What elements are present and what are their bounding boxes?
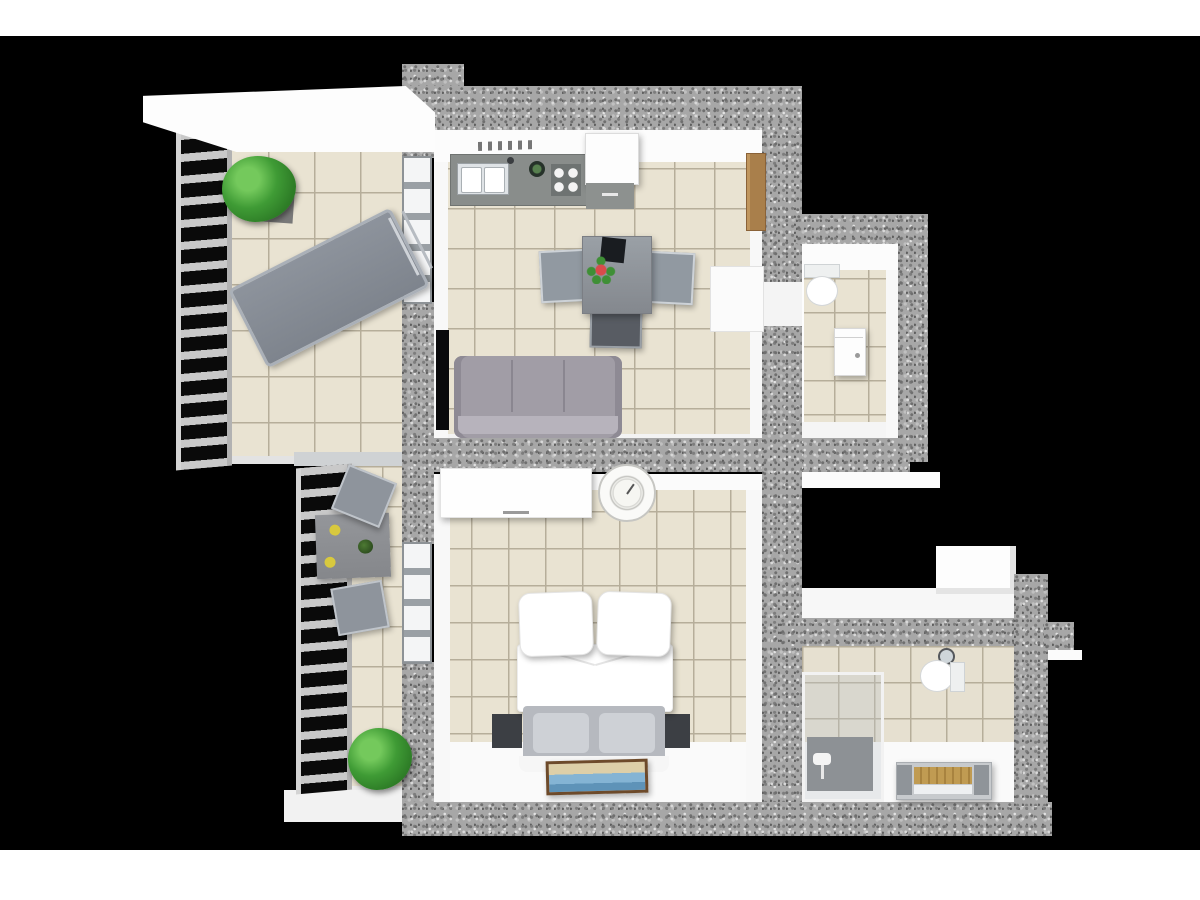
sink-basin — [484, 167, 505, 193]
double-bed — [517, 588, 671, 770]
flower-centerpiece — [586, 256, 616, 284]
bathtub-end — [897, 765, 912, 795]
wc-vanity-cabinet — [834, 328, 866, 376]
open-wooden-door — [746, 153, 766, 231]
letterbox-top — [0, 0, 1200, 36]
wall-clock — [598, 464, 656, 522]
bathtub-rim — [914, 785, 972, 794]
tv — [436, 330, 449, 430]
picture-frame — [546, 759, 649, 796]
wall-jog-sliver — [1048, 650, 1082, 660]
bathroom-toilet-bowl — [920, 660, 954, 692]
plate-yellow — [324, 557, 335, 568]
wardrobe — [440, 468, 592, 518]
kitchen-counter — [450, 154, 590, 206]
sofa-cushions — [461, 360, 615, 412]
vanity-handle — [855, 353, 860, 358]
wall-west-mid — [402, 302, 434, 442]
wall-west-bottom — [402, 662, 434, 806]
shower-fixture-stem — [821, 765, 824, 779]
door-opening — [762, 282, 802, 326]
pillow-left — [518, 591, 594, 658]
letterbox-bottom — [0, 850, 1200, 900]
wall-bath-north — [780, 618, 1048, 646]
plate-yellow — [329, 524, 340, 535]
balcony-chair — [330, 580, 390, 636]
pillow-right — [596, 591, 672, 658]
sofa — [454, 356, 622, 438]
bathtub-end — [974, 765, 989, 795]
balcony-lower-platform — [284, 790, 410, 822]
faucet-icon — [507, 157, 514, 164]
wall-west-low — [402, 470, 434, 544]
wall-face-void — [795, 472, 940, 488]
bed-foot-panel — [533, 713, 589, 753]
bathtub — [896, 762, 992, 800]
cabinet-handle — [602, 193, 618, 196]
cooking-pot — [529, 161, 545, 177]
kitchen-sink — [457, 163, 509, 195]
bathtub-wood-panel — [914, 767, 972, 784]
vestibule-wall — [710, 266, 764, 332]
fridge — [585, 133, 639, 185]
bedroom-window — [402, 542, 432, 664]
clock-hand — [626, 484, 635, 495]
vanity-divider — [835, 337, 863, 338]
shower-fixture — [813, 753, 831, 765]
sofa-seat-front — [458, 416, 618, 434]
bed-foot-section — [523, 706, 665, 760]
wall-bath-east — [1014, 574, 1048, 806]
wall-divider — [402, 438, 910, 472]
sink-basin — [461, 167, 482, 193]
bathroom-toilet-cistern — [950, 662, 965, 692]
floor-plan-3d-render — [0, 0, 1200, 900]
terrace-parapet — [936, 546, 1016, 594]
wall-south — [402, 802, 1052, 836]
wall-jog-east — [1044, 622, 1074, 650]
cooktop — [551, 164, 581, 196]
bed-foot-panel — [599, 713, 655, 753]
wardrobe-handle — [503, 511, 529, 514]
dining-chair-right — [645, 251, 696, 305]
table-plant — [358, 539, 373, 554]
shower-cabin — [802, 672, 884, 802]
wall-wc-east — [898, 214, 928, 462]
wall-north — [426, 86, 802, 130]
wc-toilet-bowl — [806, 276, 838, 306]
kitchen-base-cabinet — [586, 183, 634, 209]
